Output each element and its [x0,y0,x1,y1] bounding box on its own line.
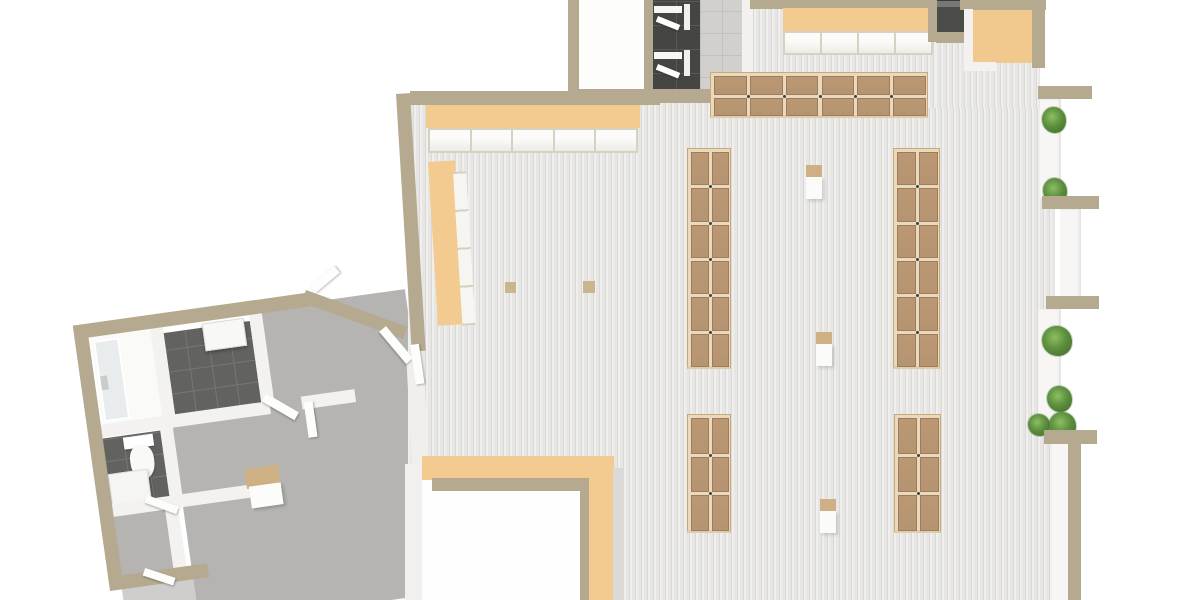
table-cell [712,334,730,367]
top-shelves-left-unit [472,130,512,151]
top-shelf-band-left [426,105,640,128]
table-joint-dot [709,222,712,225]
table-row-long-left [687,148,731,369]
bottom-room-interior [420,478,598,600]
table-row-long-right [893,148,940,369]
top-shelves-right-unit [822,33,857,53]
right-wall-jog-2 [1042,196,1099,209]
table-joint-dot [916,258,919,261]
table-cell [920,418,939,454]
plant-1 [1042,107,1066,133]
table-cell [919,188,938,221]
table-cell [920,495,939,531]
top-room-wall-left [568,0,579,92]
top-shelves-left-unit [430,130,470,151]
table-cell [897,188,916,221]
table-joint-dot [917,454,920,457]
wing-pillar-face [249,482,284,508]
table-cell [786,98,819,117]
table-cell [691,334,709,367]
table-cell [857,76,890,95]
bottom-room-right-face [613,468,623,600]
top-shelves-left-unit [596,130,636,151]
bottom-room-wall-left [405,464,422,600]
table-joint-dot [709,185,712,188]
table-joint-dot [890,95,893,98]
table-joint-dot [783,95,786,98]
table-cell [919,225,938,258]
table-cell [786,76,819,95]
pillar-2-shaft [816,344,832,366]
top-room-floor [578,0,646,90]
table-joint-dot [916,222,919,225]
table-joint-dot [854,95,857,98]
table-cell [897,297,916,330]
top-shelves-left-unit [555,130,595,151]
wc-block-floor [652,0,700,98]
bathroom-sink [202,318,247,352]
table-cell [920,457,939,493]
table-cell [691,152,709,185]
table-cell [919,297,938,330]
table-cell [898,457,917,493]
table-cell [691,261,709,294]
top-shelves-left-unit [513,130,553,151]
table-joint-dot [819,95,822,98]
plant-3 [1042,326,1072,356]
left-wing [68,245,454,600]
right-wall-jog-1 [1038,86,1092,99]
pillar-1-shaft [806,177,822,199]
table-cell [898,418,917,454]
wc-stall-wall-1 [654,6,682,13]
table-cell [712,188,730,221]
top-shelves-left [428,128,638,153]
wc-stall-side-2 [684,50,690,76]
table-row-top [710,72,928,118]
top-shelves-right-unit [785,33,820,53]
table-cell [750,76,783,95]
table-cell [857,98,890,117]
wc-block-wall-left [644,0,653,92]
table-joint-dot [709,258,712,261]
wc-stall-wall-2 [654,52,682,59]
table-cell [712,152,730,185]
hall-top-wall [410,91,660,105]
table-cell [893,98,926,117]
table-cell [691,495,709,531]
top-shelves-right-unit [896,33,931,53]
orange-room-floor [972,9,1034,63]
table-row-short-right [894,414,941,533]
top-shelf-band-right [783,8,933,31]
right-wall-jog-4 [1044,430,1097,444]
table-cell [712,495,730,531]
table-joint-dot [709,492,712,495]
table-cell [712,457,730,493]
wc-stall-side-1 [684,4,690,30]
table-joint-dot [747,95,750,98]
orange-room-wall-left [964,9,973,67]
table-cell [897,334,916,367]
table-cell [897,152,916,185]
table-cell [691,188,709,221]
table-cell [893,76,926,95]
orange-room-wall-bottom [964,62,996,71]
table-cell [714,76,747,95]
top-shelves-right-unit [859,33,894,53]
table-cell [691,297,709,330]
table-cell [712,418,730,454]
bottom-room-band-right [587,462,614,600]
table-cell [919,334,938,367]
right-wall-band-4-outer [1068,444,1081,600]
table-cell [691,418,709,454]
table-cell [822,76,855,95]
table-cell [898,495,917,531]
floor-marker-2 [505,282,516,293]
floorplan-render [0,0,1200,600]
table-cell [712,261,730,294]
right-wall-band-2 [1060,209,1081,298]
table-cell [712,225,730,258]
right-wall-jog-3 [1046,296,1099,309]
table-cell [919,261,938,294]
door-wing-top [310,266,340,293]
table-joint-dot [709,331,712,334]
bottom-room-inner-right [580,478,589,600]
pillar-3-shaft [820,511,836,533]
table-cell [712,297,730,330]
floor-marker-1 [583,281,595,293]
table-cell [691,457,709,493]
table-row-short-left [687,414,731,533]
corridor-wall-right [742,0,753,72]
table-joint-dot [916,331,919,334]
bottom-room-band-top [422,456,614,480]
table-cell [897,225,916,258]
table-cell [822,98,855,117]
top-shelves-right [783,31,933,55]
table-cell [919,152,938,185]
table-joint-dot [709,454,712,457]
table-cell [691,225,709,258]
table-cell [750,98,783,117]
orange-room-wall-right [1032,0,1045,68]
table-joint-dot [709,294,712,297]
plant-4 [1047,386,1072,412]
bottom-room-inner-top [432,478,598,491]
table-cell [897,261,916,294]
table-cell [714,98,747,117]
